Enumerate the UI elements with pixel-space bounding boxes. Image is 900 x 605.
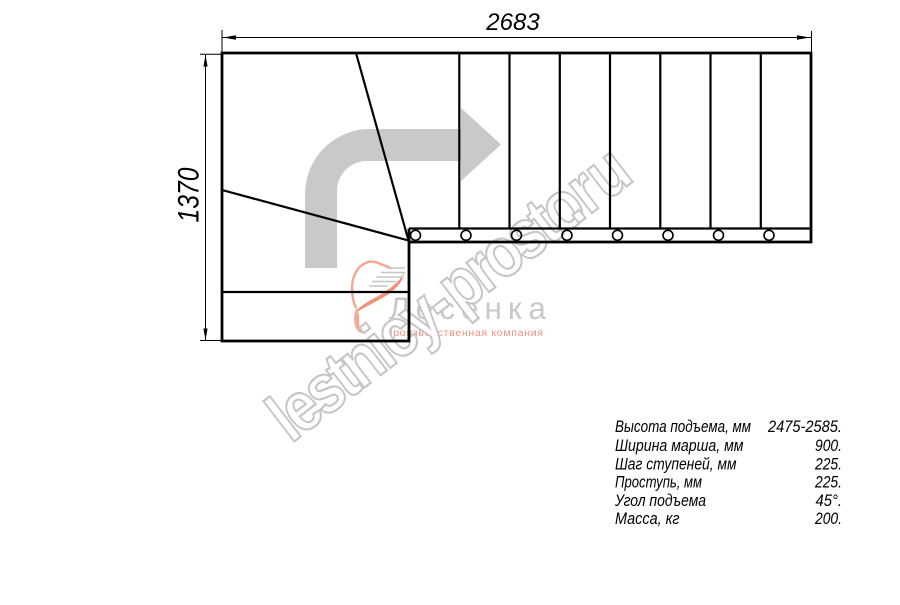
svg-text:225.: 225. — [814, 454, 842, 473]
svg-text:Масса, кг: Масса, кг — [615, 509, 680, 528]
svg-text:Проступь, мм: Проступь, мм — [615, 473, 702, 492]
svg-text:Ширина марша, мм: Ширина марша, мм — [615, 436, 744, 455]
svg-text:Шаг ступеней, мм: Шаг ступеней, мм — [615, 454, 737, 473]
svg-text:225.: 225. — [814, 473, 842, 492]
svg-text:2683: 2683 — [485, 9, 540, 36]
svg-text:2475-2585.: 2475-2585. — [767, 417, 842, 436]
svg-text:200.: 200. — [814, 509, 842, 528]
svg-text:Высота подъема, мм: Высота подъема, мм — [615, 417, 751, 436]
svg-text:1370: 1370 — [173, 167, 206, 222]
svg-text:45°.: 45°. — [816, 491, 843, 510]
svg-text:Угол подъема: Угол подъема — [614, 491, 706, 510]
svg-text:900.: 900. — [815, 436, 842, 455]
